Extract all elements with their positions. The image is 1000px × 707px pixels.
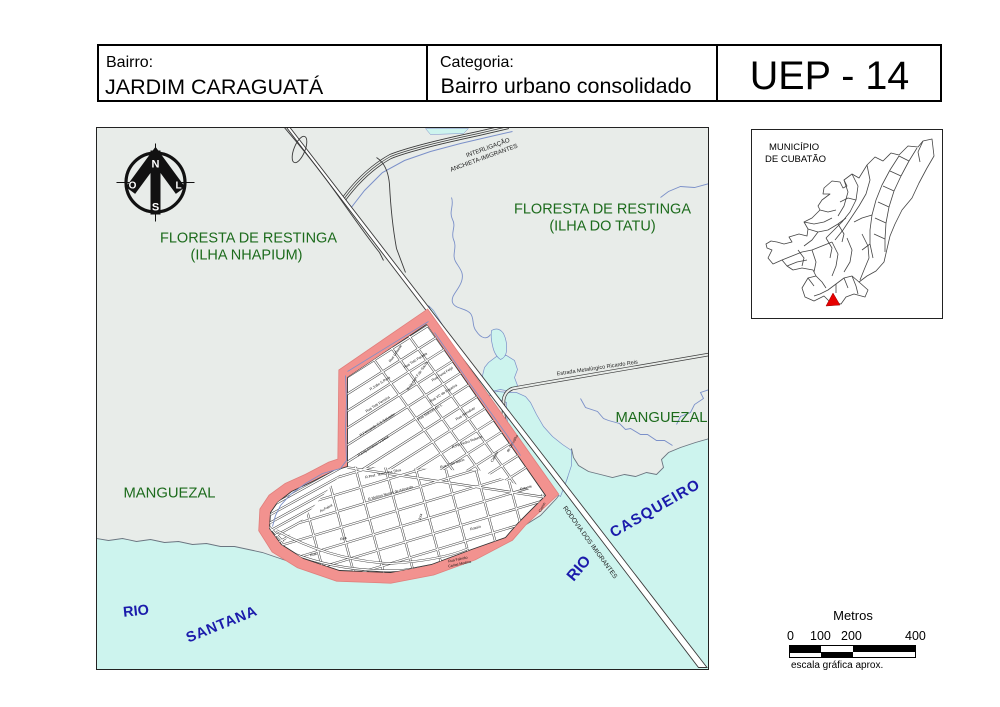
svg-text:L: L [175,181,181,192]
svg-text:S: S [152,202,159,214]
svg-text:MUNICÍPIO: MUNICÍPIO [769,142,819,153]
svg-text:N: N [152,159,160,171]
svg-text:RIO: RIO [122,602,149,621]
svg-text:MANGUEZAL: MANGUEZAL [123,486,215,502]
svg-text:FLORESTA DE RESTINGA: FLORESTA DE RESTINGA [160,231,337,247]
svg-text:(ILHA DO TATU): (ILHA DO TATU) [549,219,655,235]
svg-text:O: O [129,181,137,192]
svg-text:MANGUEZAL: MANGUEZAL [615,410,707,426]
svg-text:(ILHA NHAPIUM): (ILHA NHAPIUM) [191,248,303,264]
svg-text:DE CUBATÃO: DE CUBATÃO [765,154,826,165]
svg-text:FLORESTA DE RESTINGA: FLORESTA DE RESTINGA [514,202,691,218]
